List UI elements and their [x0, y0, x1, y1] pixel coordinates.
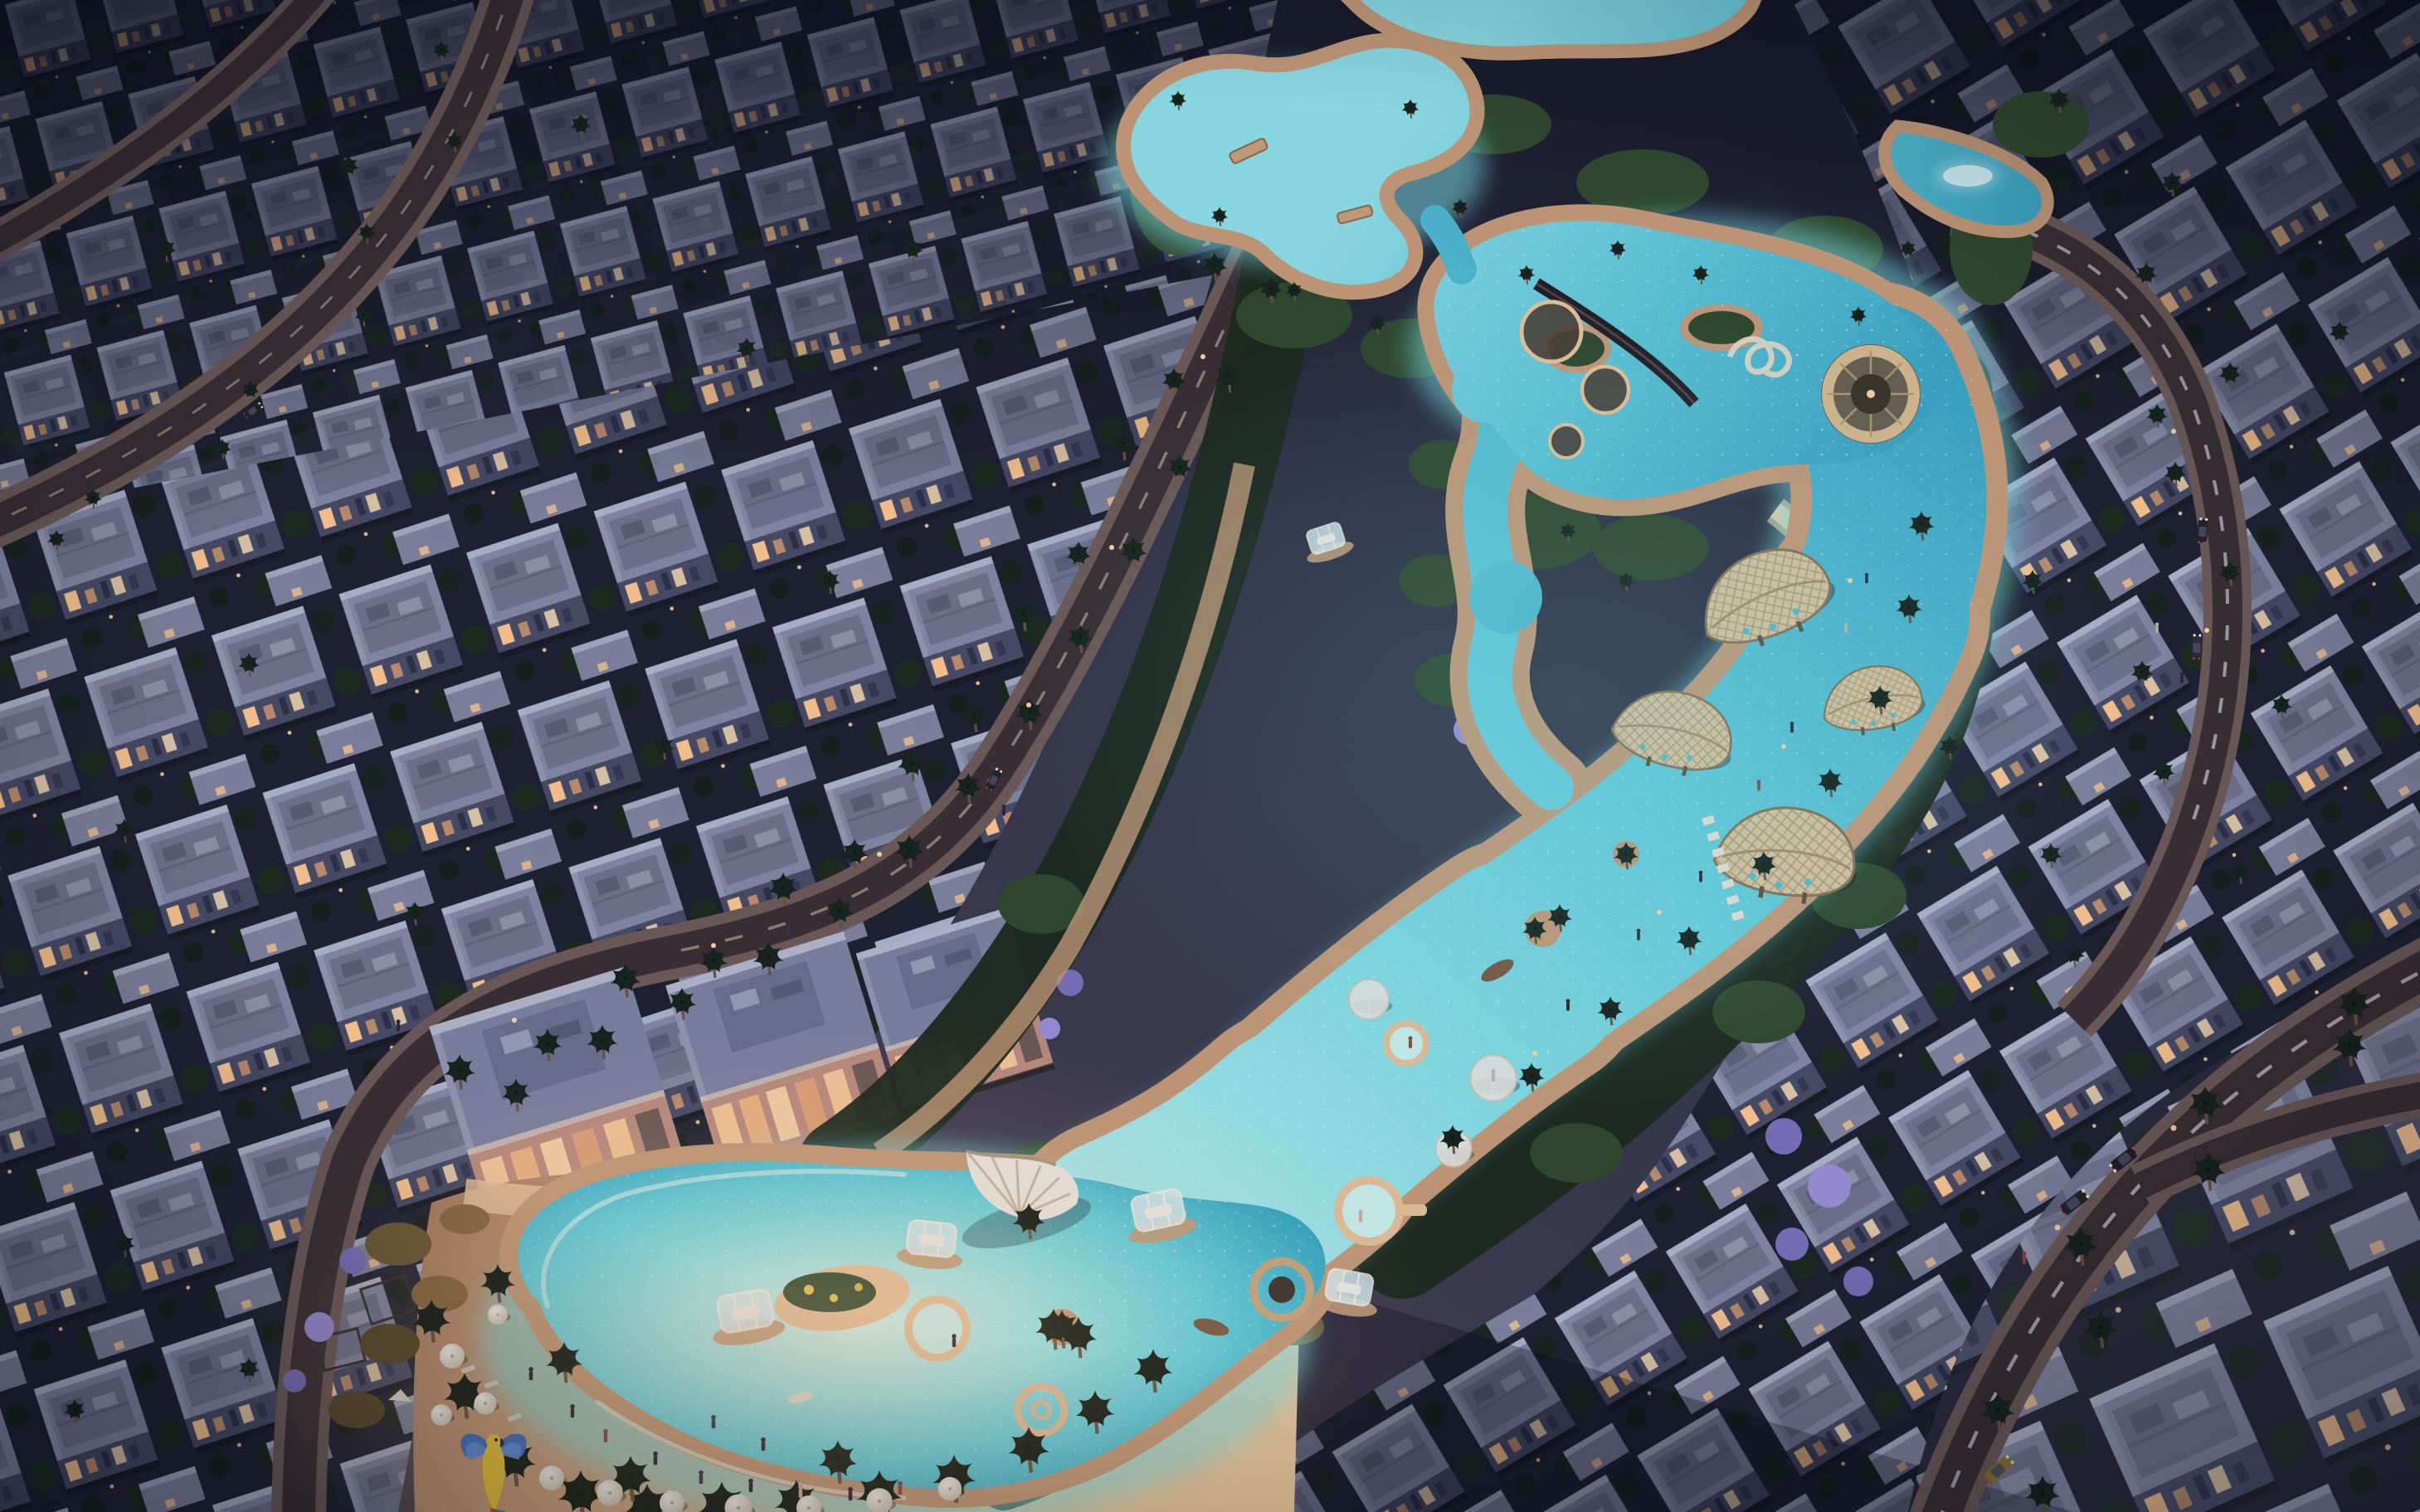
aerial-render [0, 0, 2420, 1512]
atmosphere [0, 0, 2420, 1512]
scene-canvas [0, 0, 2420, 1512]
